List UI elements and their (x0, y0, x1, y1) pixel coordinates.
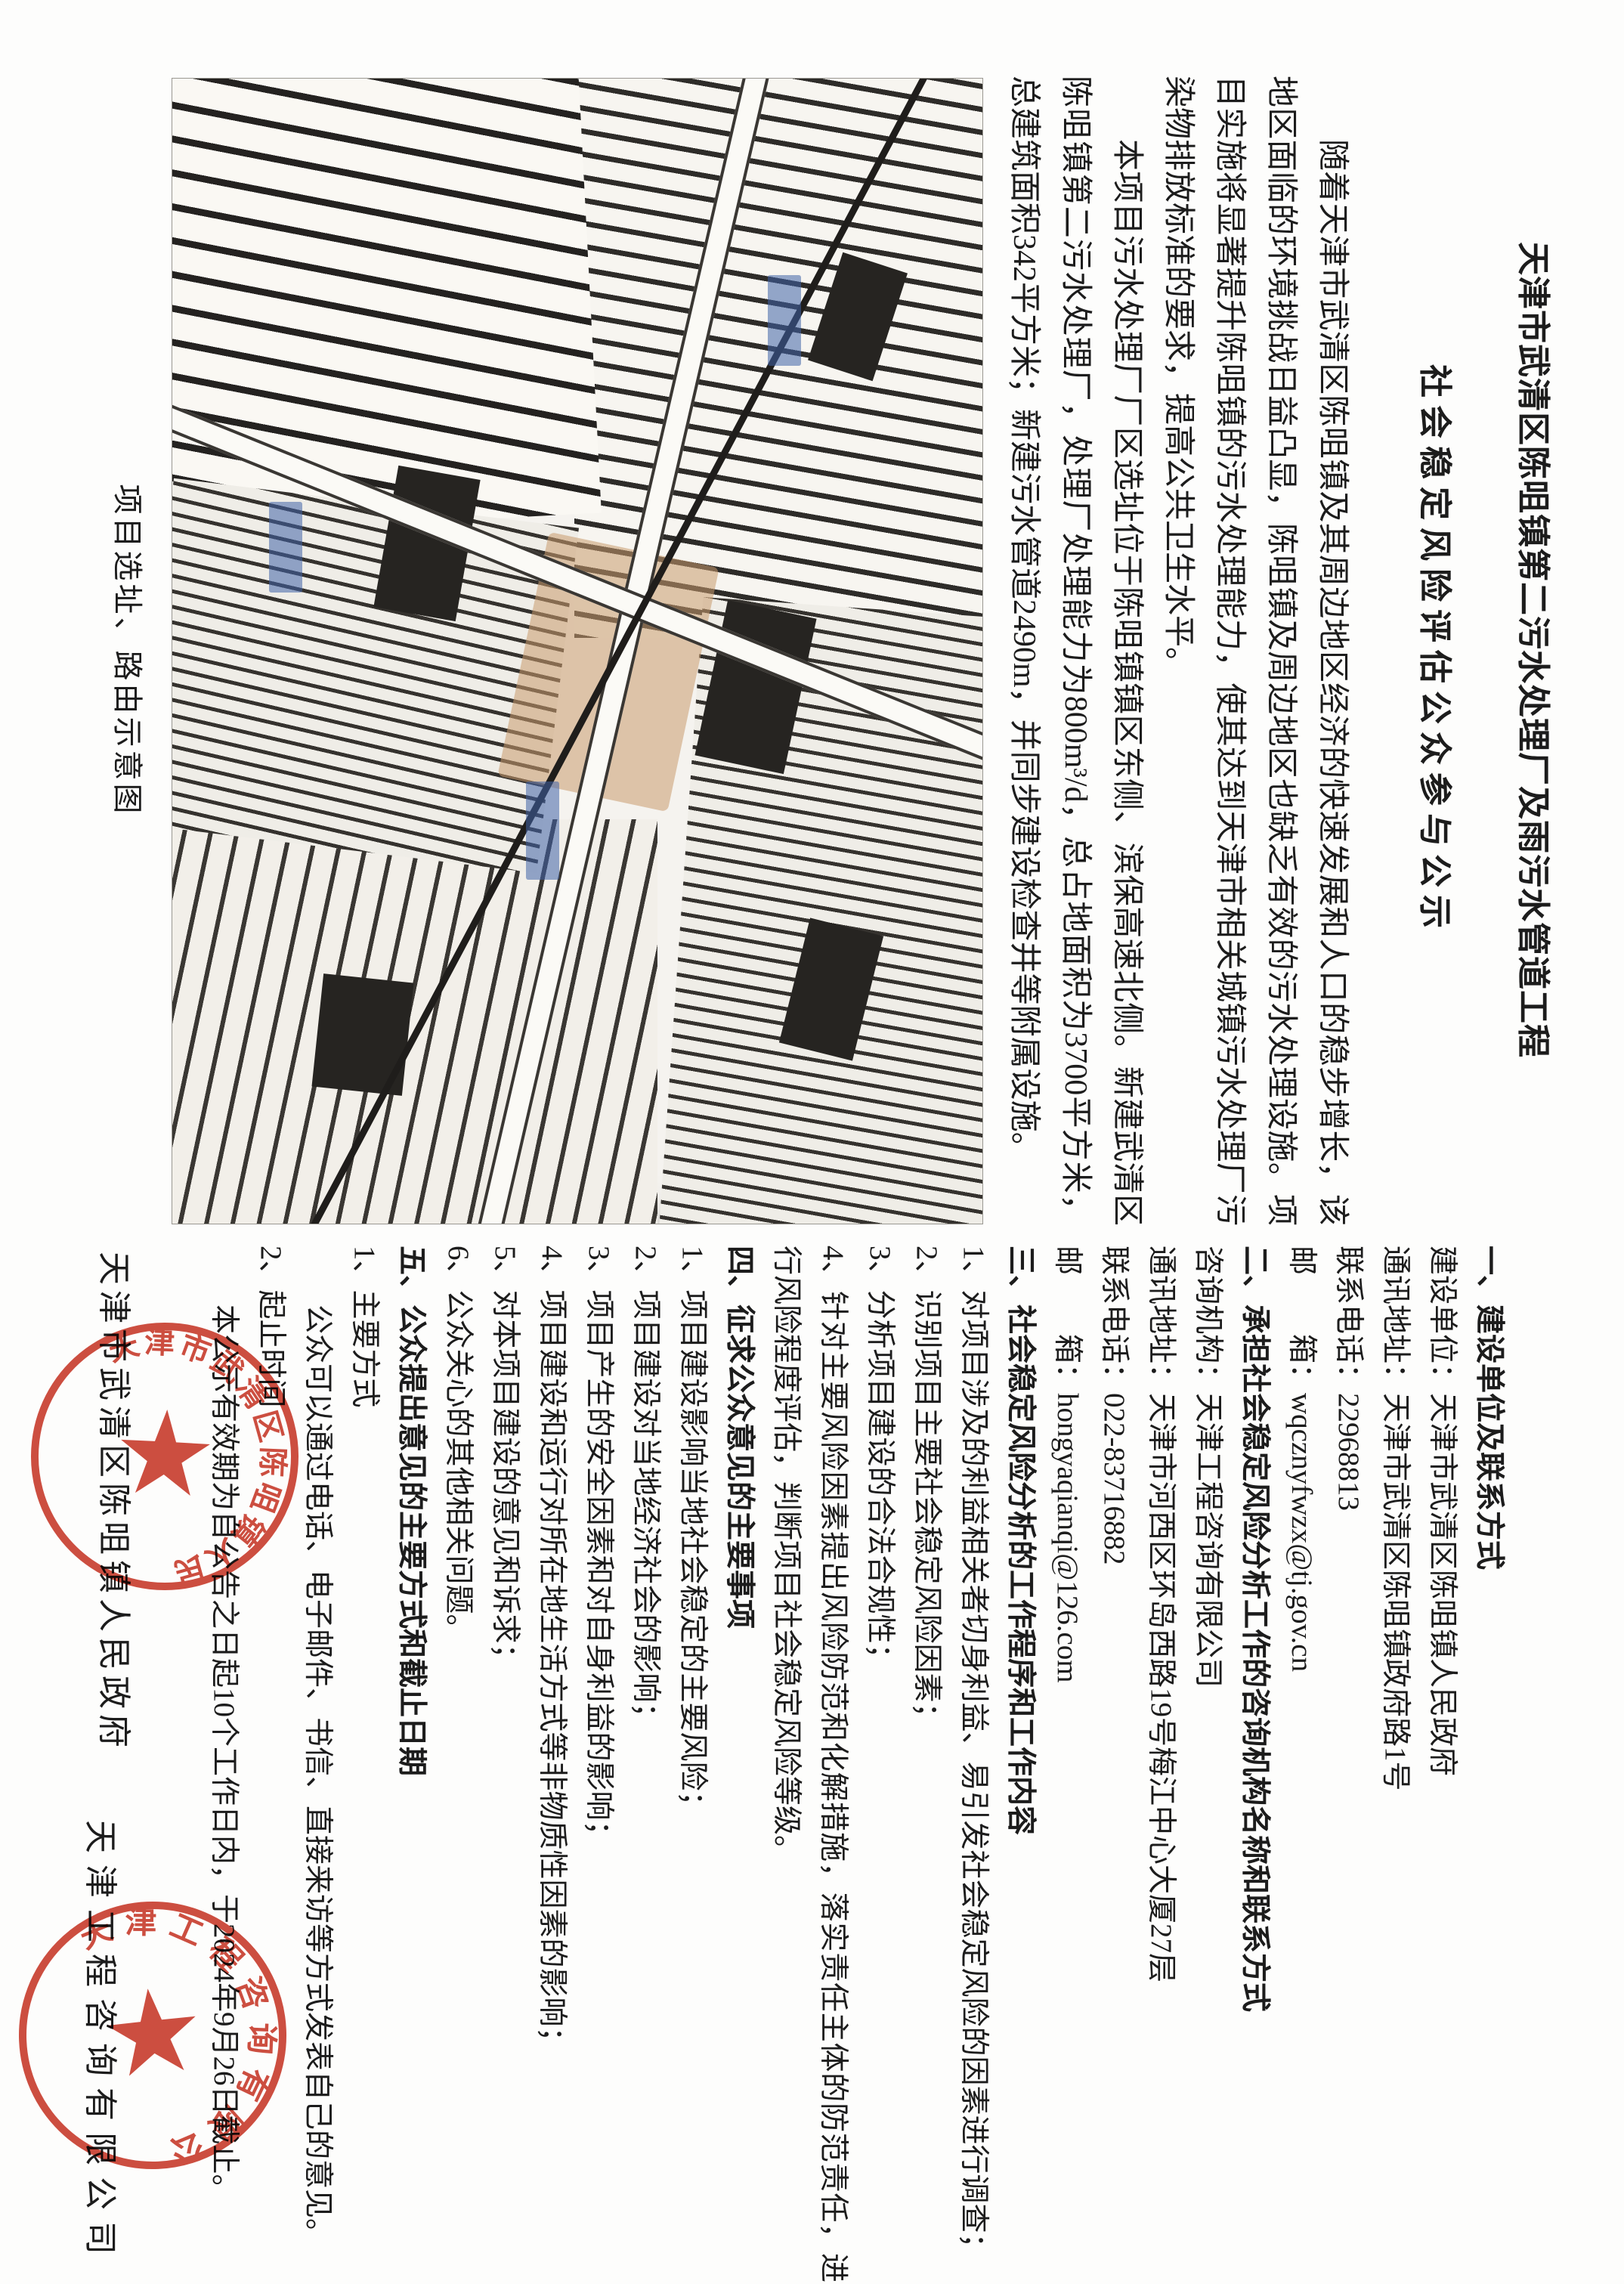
section-2-heading: 二、承担社会稳定风险分析工作的咨询机构名称和联系方式 (1231, 1246, 1278, 2282)
map-field-pattern (172, 819, 657, 1224)
document-title-line1: 天津市武清区陈咀镇第二污水处理厂及雨污水管道工程 (1512, 76, 1561, 1224)
section-3-heading: 三、社会稳定风险分析的工作程序和工作内容 (997, 1246, 1044, 2282)
section-1-line: 邮 箱：wqcznyfwzx@tj.gov.cn (1278, 1246, 1325, 2282)
section-1-line: 建设单位：天津市武清区陈咀镇人民政府 (1418, 1246, 1465, 2282)
scanned-notice-page: 天津市武清区陈咀镇第二污水处理厂及雨污水管道工程 社会稳定风险评估公众参与公示 … (0, 0, 1624, 2284)
section-3-item: 2、识别项目主要社会稳定风险因素； (903, 1246, 950, 2282)
section-5-heading: 五、公众提出意见的主要方式和截止日期 (388, 1246, 435, 2282)
section-3-item: 3、分析项目建设的合法合规性； (856, 1246, 903, 2282)
section-3-item: 1、对项目涉及的利益相关者切身利益、易引发社会稳定风险的因素进行调查； (950, 1246, 997, 2282)
seal-star-icon (100, 1976, 213, 2091)
section-5-item: 1、主要方式 (341, 1246, 388, 2282)
section-4-item: 2、项目建设对当地经济社会的影响； (622, 1246, 669, 2282)
map-building-block (311, 973, 413, 1096)
section-2-line: 联系电话：022-83716882 (1090, 1246, 1137, 2282)
paragraph-project-scope: 本项目污水处理厂厂区选址位于陈咀镇镇区东侧、滨保高速北侧。新建武清区陈咀镇第二污… (998, 76, 1152, 1226)
section-4-heading: 四、征求公众意见的主要事项 (716, 1246, 763, 2282)
seal-star-icon (116, 1401, 221, 1509)
section-1-heading: 一、建设单位及联系方式 (1465, 1246, 1512, 2282)
section-1-line: 通讯地址：天津市武清区陈咀镇政府路1号 (1372, 1246, 1418, 2282)
site-location-map (172, 78, 983, 1224)
map-annotation-chip (526, 781, 559, 880)
section-4-item: 3、项目产生的安全因素和对自身利益的影响； (575, 1246, 622, 2282)
section-1-line: 联系电话：22968813 (1325, 1246, 1372, 2282)
paragraph-project-background: 随着天津市武清区陈咀镇及其周边地区经济的快速发展和人口的稳步增长，该地区面临的环… (1152, 76, 1358, 1226)
section-4-item: 4、项目建设和运行对所在地生活方式等非物质性因素的影响； (528, 1246, 575, 2282)
section-4-item: 5、对本项目建设的意见和诉求； (481, 1246, 528, 2282)
section-2-line: 通讯地址：天津市河西区环岛西路19号梅江中心大厦27层 (1137, 1246, 1184, 2282)
section-4-item: 6、公众关心的其他相关问题。 (435, 1246, 481, 2282)
section-2-line: 邮 箱：hongyaqianqi@126.com (1044, 1246, 1090, 2282)
landscape-document: 天津市武清区陈咀镇第二污水处理厂及雨污水管道工程 社会稳定风险评估公众参与公示 … (0, 0, 1624, 2284)
map-caption: 项目选址、路由示意图 (108, 78, 152, 1223)
section-4-item: 1、项目建设影响当地社会稳定的主要风险； (669, 1246, 716, 2282)
document-title-line2: 社会稳定风险评估公众参与公示 (1414, 76, 1462, 1224)
sections-column: 一、建设单位及联系方式 建设单位：天津市武清区陈咀镇人民政府 通讯地址：天津市武… (200, 1246, 1512, 2282)
section-2-line: 咨询机构：天津工程咨询有限公司 (1184, 1246, 1231, 2282)
map-annotation-chip (768, 275, 801, 366)
map-field-pattern (172, 78, 602, 536)
section-3-item: 4、针对主要风险因素提出风险防范和化解措施，落实责任主体的防范责任，进行风险程度… (763, 1246, 856, 2282)
map-annotation-chip (269, 502, 302, 593)
intro-paragraphs: 随着天津市武清区陈咀镇及其周边地区经济的快速发展和人口的稳步增长，该地区面临的环… (998, 76, 1358, 1226)
